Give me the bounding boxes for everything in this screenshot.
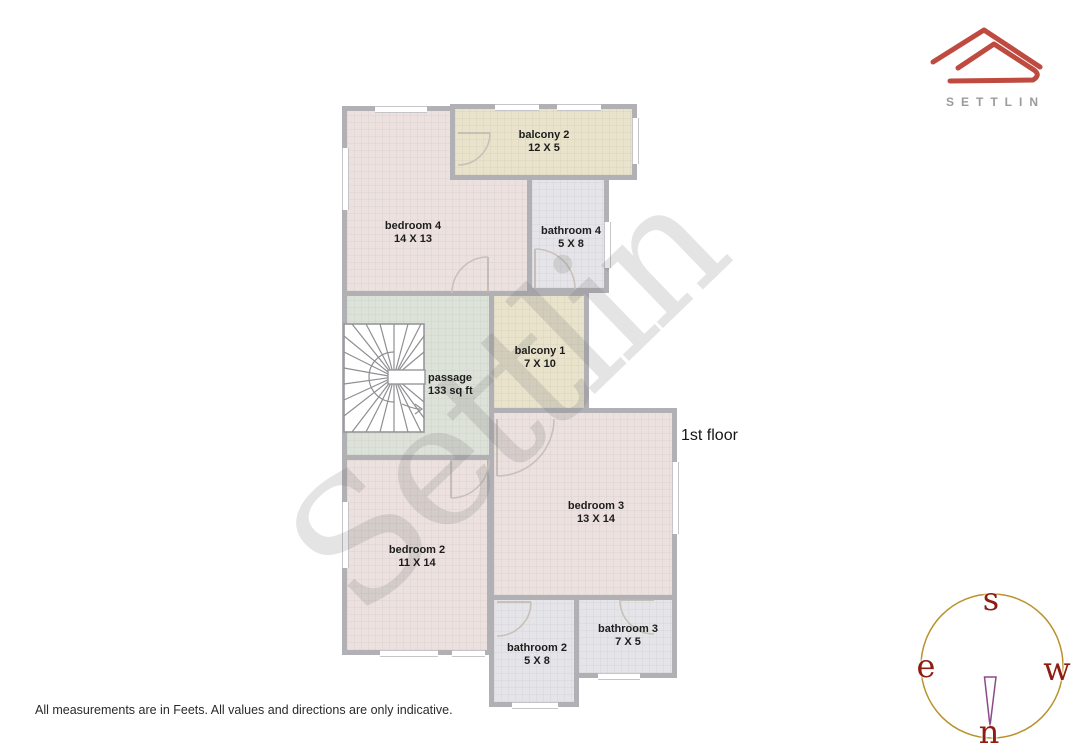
room-name: balcony 1 xyxy=(515,345,566,357)
compass: s e w n xyxy=(905,575,1079,754)
disclaimer-text: All measurements are in Feets. All value… xyxy=(35,703,453,717)
room-name: bedroom 4 xyxy=(385,220,441,232)
room-size: 7 X 10 xyxy=(524,358,556,370)
compass-west-label: w xyxy=(1043,650,1070,688)
room-size: 5 X 8 xyxy=(558,238,584,250)
window xyxy=(495,104,539,111)
window xyxy=(452,650,485,657)
room-name: bathroom 2 xyxy=(507,642,567,654)
room-size: 5 X 8 xyxy=(524,655,550,667)
room-name: bathroom 3 xyxy=(598,623,658,635)
brand-logo: SETTLIN xyxy=(918,20,1066,109)
window xyxy=(380,650,438,657)
room-size: 13 X 14 xyxy=(577,513,615,525)
room-name: passage xyxy=(428,372,472,384)
compass-north-label: n xyxy=(979,713,1000,751)
room-name: bedroom 2 xyxy=(389,544,445,556)
window xyxy=(557,104,601,111)
room-size: 12 X 5 xyxy=(528,142,560,154)
label-bedroom-4: bedroom 4 14 X 13 xyxy=(385,220,441,246)
room-size: 7 X 5 xyxy=(615,636,641,648)
window xyxy=(672,462,679,534)
label-balcony-2: balcony 2 12 X 5 xyxy=(519,129,570,155)
window xyxy=(512,702,558,709)
room-name: balcony 2 xyxy=(519,129,570,141)
floor-plan-page: Settlin bedroom 4 14 X 13 balcony 2 12 X… xyxy=(0,0,1079,754)
window xyxy=(342,502,349,568)
room-name: bedroom 3 xyxy=(568,500,624,512)
brand-name: SETTLIN xyxy=(918,95,1066,109)
label-bedroom-2: bedroom 2 11 X 14 xyxy=(389,544,445,570)
window xyxy=(375,106,427,113)
room-size: 14 X 13 xyxy=(394,233,432,245)
window xyxy=(632,118,639,164)
label-balcony-1: balcony 1 7 X 10 xyxy=(515,345,566,371)
compass-east-label: e xyxy=(917,647,936,685)
compass-south-label: s xyxy=(983,580,999,618)
label-bathroom-4: bathroom 4 5 X 8 xyxy=(541,225,601,251)
label-passage: passage 133 sq ft xyxy=(428,372,473,398)
window xyxy=(604,222,611,268)
label-bathroom-2: bathroom 2 5 X 8 xyxy=(507,642,567,668)
floor-label: 1st floor xyxy=(681,427,738,445)
room-size: 11 X 14 xyxy=(398,557,435,569)
window xyxy=(598,673,640,680)
label-bedroom-3: bedroom 3 13 X 14 xyxy=(568,500,624,526)
settlin-roof-icon xyxy=(918,20,1066,88)
label-bathroom-3: bathroom 3 7 X 5 xyxy=(598,623,658,649)
room-name: bathroom 4 xyxy=(541,225,601,237)
room-size: 133 sq ft xyxy=(428,385,473,397)
window xyxy=(342,148,349,210)
